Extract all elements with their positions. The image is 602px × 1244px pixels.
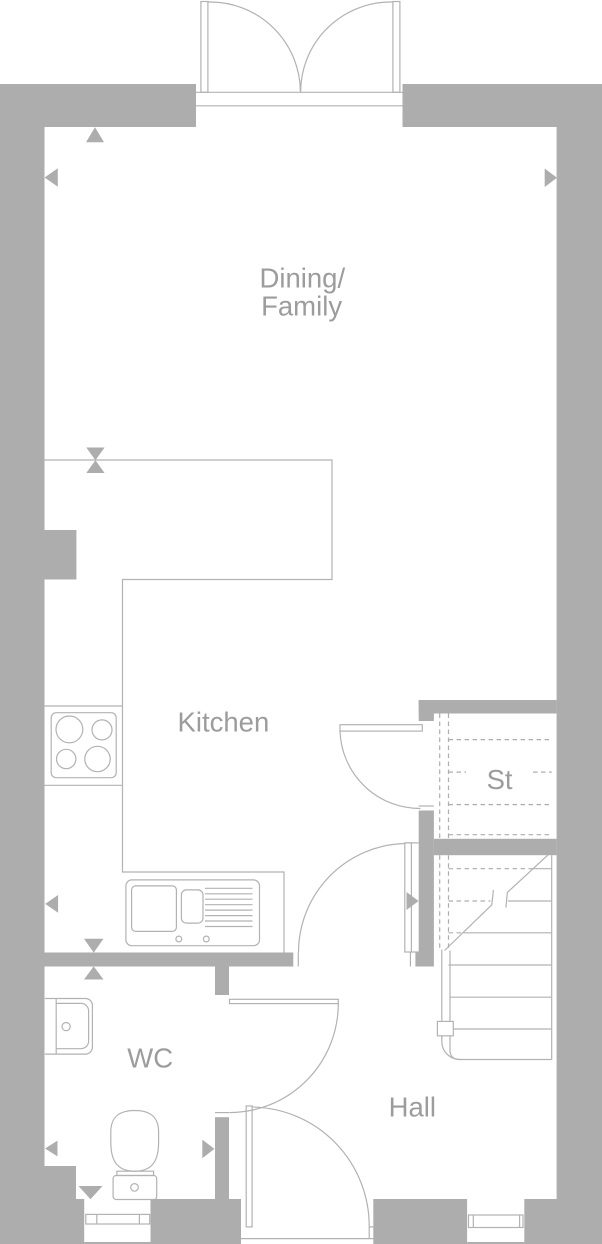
svg-text:Kitchen: Kitchen — [178, 706, 270, 737]
svg-text:WC: WC — [127, 1042, 173, 1073]
svg-text:Hall: Hall — [389, 1091, 436, 1122]
svg-text:St: St — [487, 764, 513, 795]
svg-text:Dining/: Dining/ — [259, 263, 345, 294]
svg-text:Family: Family — [261, 290, 342, 321]
